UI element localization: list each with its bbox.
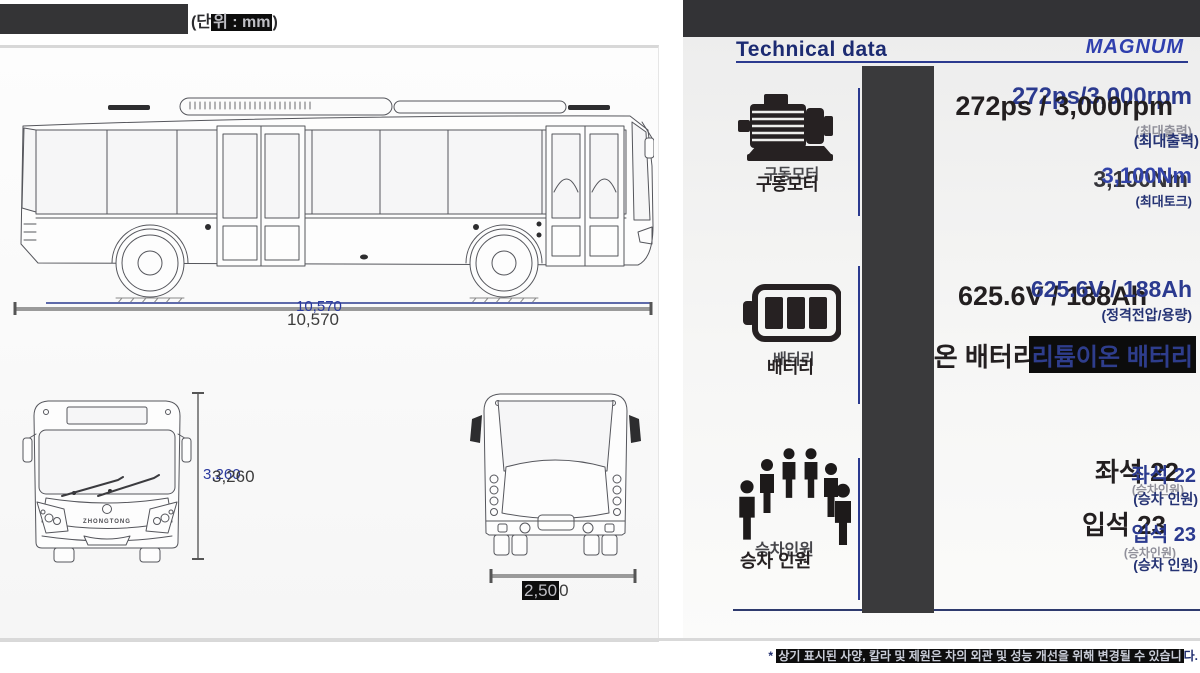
standing-capacity-value-ghost: 입석 23 <box>1131 518 1196 547</box>
battery-icon <box>743 281 841 345</box>
bus-side-view-drawing <box>12 96 654 302</box>
unit-prefix: (단 <box>191 14 211 31</box>
motor-torque-value: 3,100Nm <box>1101 163 1192 189</box>
footnote-tail: 다. <box>1184 649 1198 663</box>
passengers-icon <box>733 443 851 545</box>
front-badge-text: ZHONGTONG <box>83 519 131 525</box>
technical-data-title: Technical data <box>736 38 887 62</box>
height-value: 3,260 <box>212 467 255 487</box>
unit-label: (단위 : mm) <box>191 8 278 32</box>
right-header-bar <box>683 0 1200 37</box>
title-underline <box>736 61 1188 63</box>
motor-icon <box>738 92 842 164</box>
dark-overlay-bar <box>862 66 934 613</box>
battery-type-value: 리튬이온 배터리 <box>1029 336 1196 373</box>
battery-voltage-caption: (정격전압/용량) <box>1102 305 1193 325</box>
left-title-bar <box>0 4 188 34</box>
standing-caption: (승차 인원) <box>1133 555 1198 575</box>
bus-rear-view-drawing <box>468 383 643 563</box>
spec-sheet-page: (단위 : mm) <box>0 0 1200 673</box>
motor-power-value: 272ps / 3,000rpm <box>955 91 1173 122</box>
technical-data-panel: Technical data MAGNUM 구동모터 구동모터 272ps/3,… <box>683 0 1200 641</box>
motor-power-caption: (최대출력) <box>1134 130 1199 151</box>
motor-torque-caption: (최대토크) <box>1136 191 1193 210</box>
battery-voltage-value-ghost: 625.6V / 188Ah <box>1031 276 1192 303</box>
battery-section-divider <box>858 266 860 404</box>
footnote-highlight: 상기 표시된 사양, 칼라 및 제원은 차의 외관 및 성능 개선을 위해 변경… <box>776 649 1183 663</box>
unit-highlight: 위 : mm <box>211 14 272 31</box>
width-value: 2,500 <box>522 581 569 601</box>
footnote: * 상기 표시된 사양, 칼라 및 제원은 차의 외관 및 성능 개선을 위해 … <box>768 647 1198 664</box>
bus-front-view-drawing: ZHONGTONG <box>22 390 192 570</box>
unit-suffix: ) <box>272 14 277 31</box>
width-value-tail: 0 <box>559 581 568 600</box>
passengers-section-divider <box>858 458 860 600</box>
width-value-highlight: 2,50 <box>522 581 559 600</box>
bottom-divider-line <box>0 638 1200 641</box>
length-value: 10,570 <box>287 310 339 330</box>
brand-name: MAGNUM <box>1086 36 1184 59</box>
motor-section-divider <box>858 88 860 216</box>
motor-label: 구동모터 <box>756 170 819 195</box>
battery-label: 배터리 <box>767 353 814 378</box>
passengers-label: 승차 인원 <box>740 547 811 573</box>
sections-end-line <box>733 609 1200 611</box>
